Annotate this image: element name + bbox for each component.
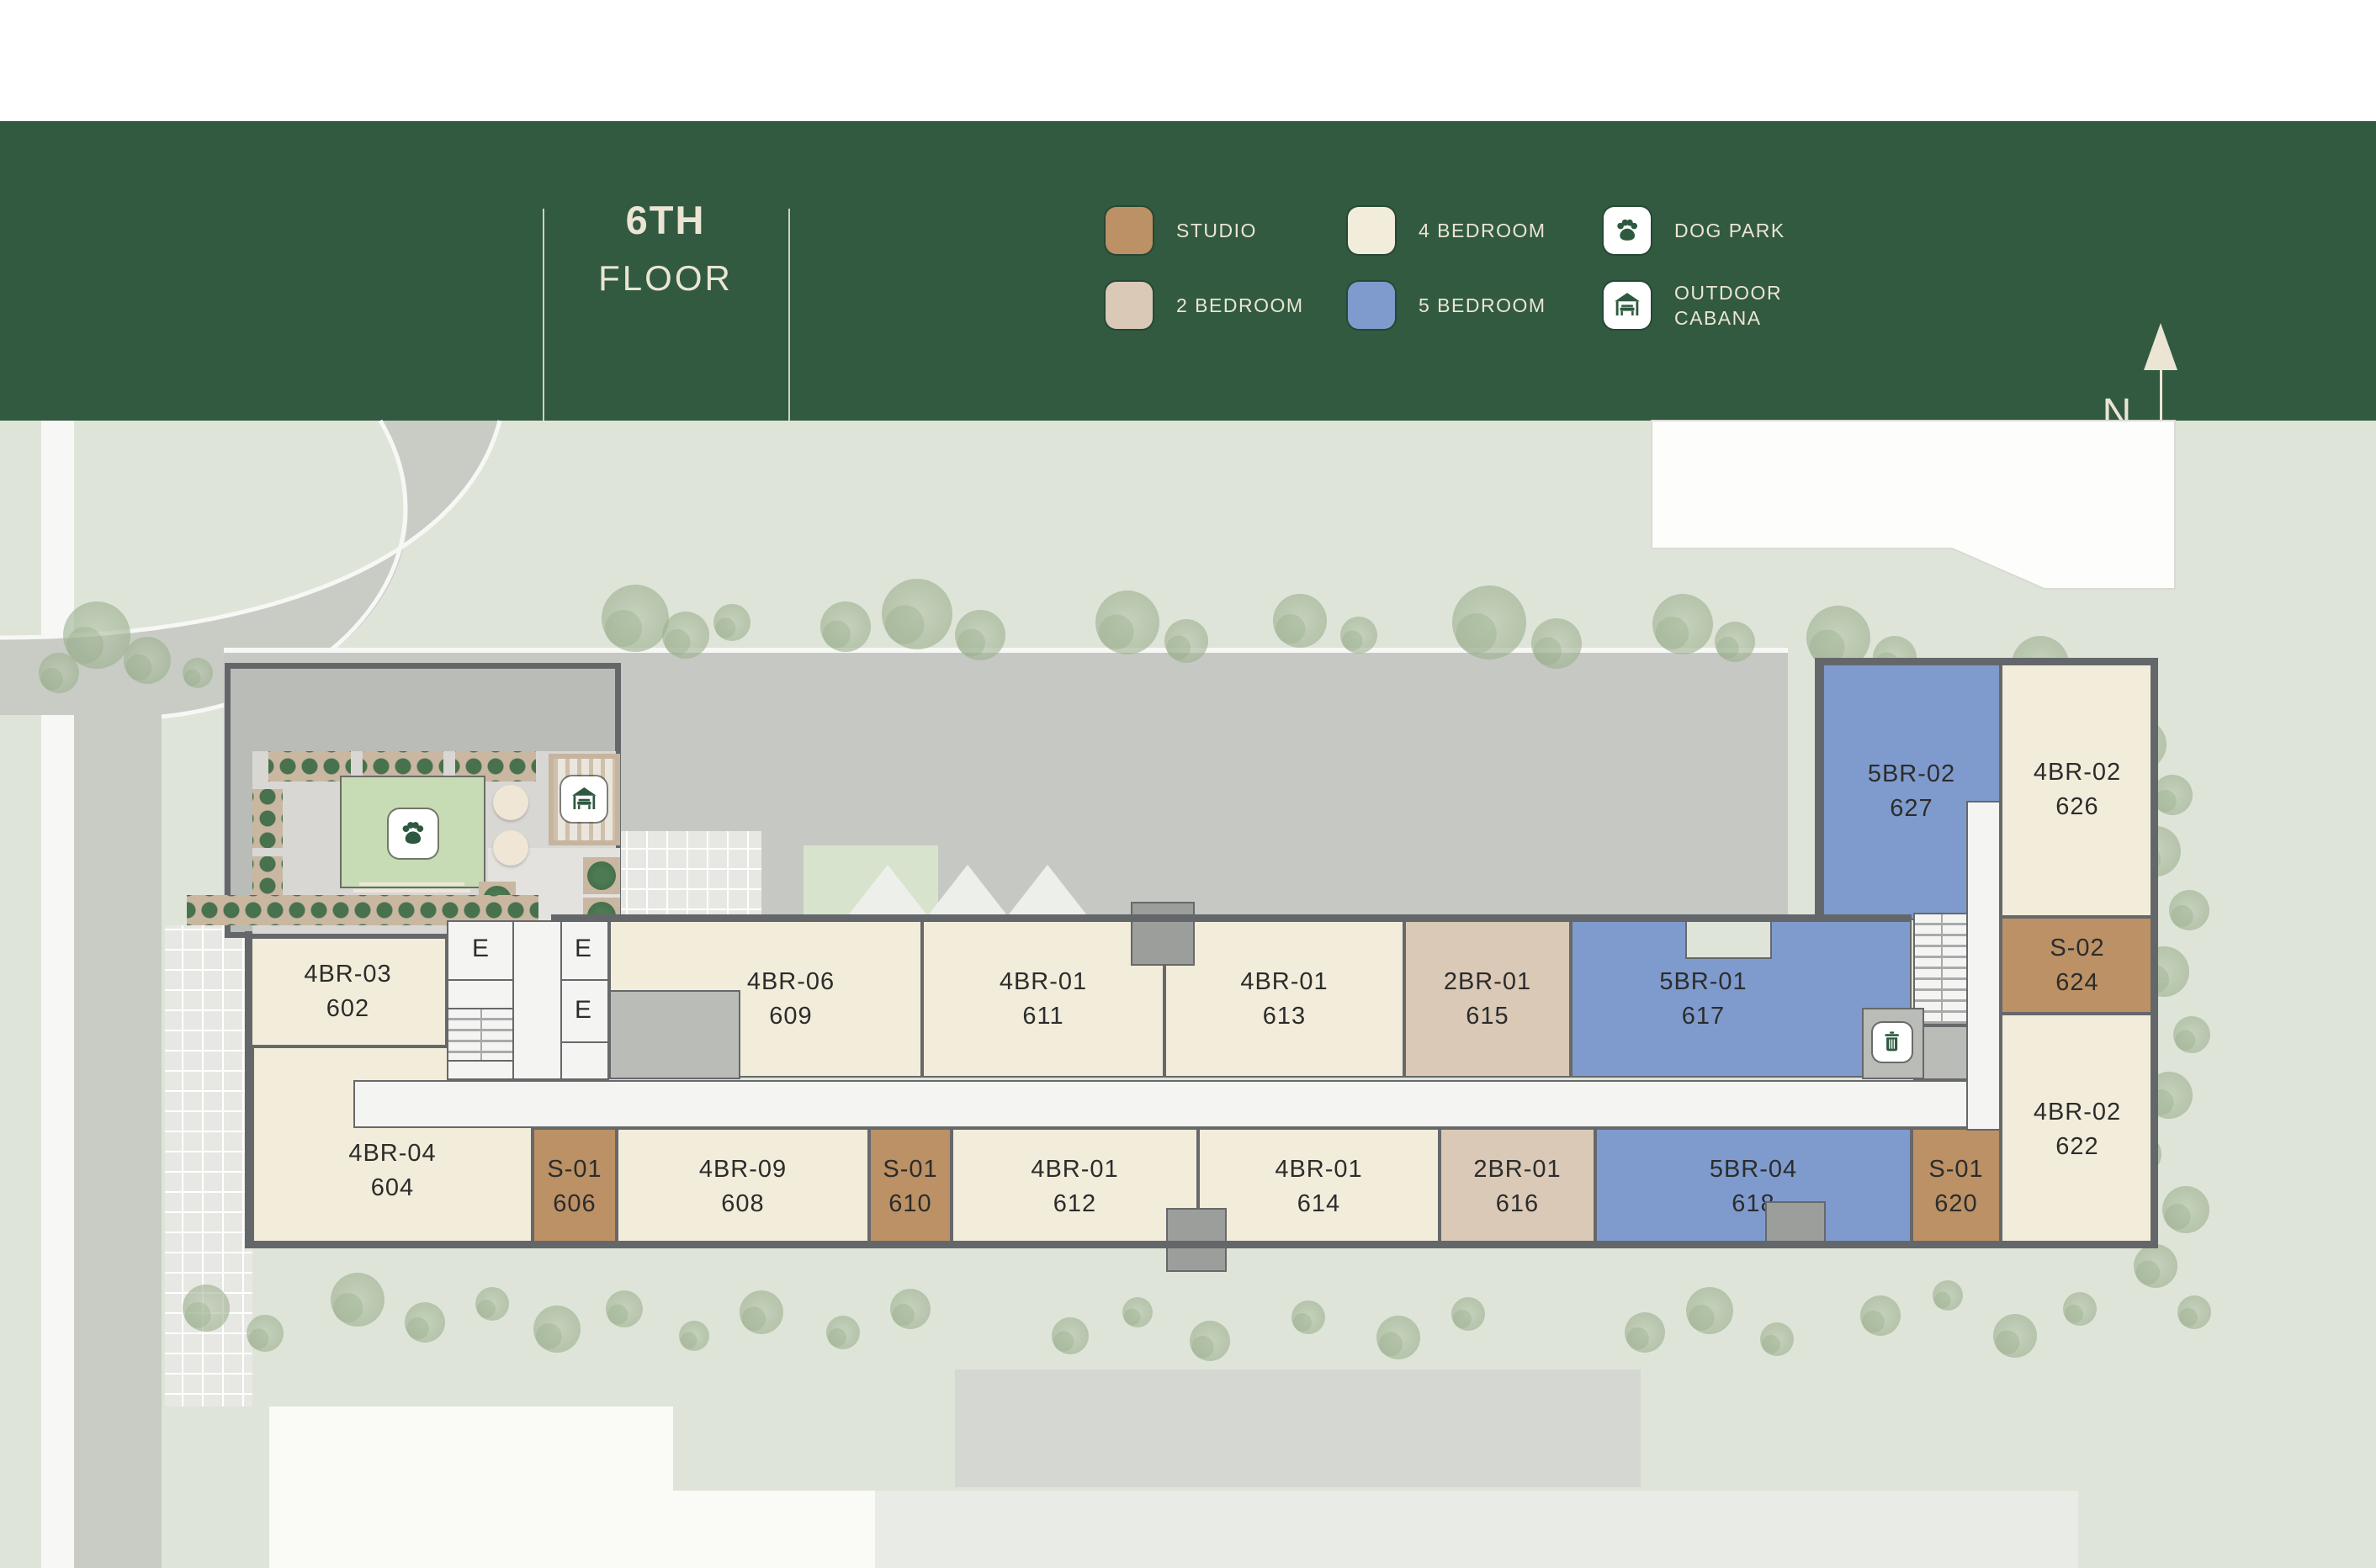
unit-number: 622 [2055, 1130, 2098, 1164]
unit-name: 4BR-03 [304, 957, 391, 992]
cabana-icon [561, 776, 607, 822]
planter [252, 789, 283, 848]
unit-number: 616 [1496, 1187, 1539, 1221]
outer-wall [551, 914, 1912, 922]
unit-number: 604 [371, 1171, 414, 1205]
unit-name: 4BR-02 [2034, 1095, 2121, 1130]
utility-block [609, 990, 740, 1079]
unit-name: 2BR-01 [1444, 965, 1531, 999]
unit-number: 610 [888, 1187, 931, 1221]
round-seat [493, 830, 528, 866]
outer-wall [245, 1241, 2158, 1248]
dog-park-icon [389, 809, 438, 858]
unit-number: 626 [2055, 790, 2098, 824]
unit-613[interactable]: 4BR-01613 [1164, 920, 1404, 1078]
roof-notch [1131, 902, 1195, 966]
unit-number: 609 [769, 999, 812, 1034]
unit-624[interactable]: S-02624 [2001, 917, 2154, 1014]
elevator-label: E [472, 935, 489, 963]
unit-name: S-01 [883, 1152, 937, 1187]
road-vertical [74, 665, 162, 1568]
unit-name: 2BR-01 [1473, 1152, 1561, 1187]
unit-618[interactable]: 5BR-04618 [1595, 1128, 1912, 1245]
corridor [353, 1080, 2001, 1128]
lightwell-notch [1685, 920, 1772, 959]
unit-name: S-01 [547, 1152, 602, 1187]
planter [268, 751, 351, 781]
unit-622[interactable]: 4BR-02622 [2001, 1014, 2154, 1245]
floorplan-page: 6TH FLOOR STUDIO 2 BEDROOM 4 BEDROOM 5 B… [0, 0, 2376, 1568]
sidewalk-strip [41, 421, 74, 1568]
unit-number: 611 [1022, 999, 1063, 1034]
unit-name: 4BR-01 [1031, 1152, 1118, 1187]
unit-name: 4BR-01 [1275, 1152, 1362, 1187]
unit-name: S-01 [1928, 1152, 1983, 1187]
unit-611[interactable]: 4BR-01611 [922, 920, 1164, 1078]
unit-606[interactable]: S-01606 [533, 1128, 617, 1245]
hall-shaft [1966, 801, 2001, 1131]
unit-number: 614 [1297, 1187, 1340, 1221]
unit-name: 4BR-06 [747, 965, 835, 999]
bottom-strip-white [269, 1491, 875, 1568]
unit-614[interactable]: 4BR-01614 [1198, 1128, 1440, 1245]
unit-626[interactable]: 4BR-02626 [2001, 663, 2154, 917]
unit-number: 608 [721, 1187, 764, 1221]
unit-number: 617 [1682, 999, 1725, 1034]
unit-602[interactable]: 4BR-03602 [249, 937, 447, 1046]
unit-612[interactable]: 4BR-01612 [952, 1128, 1198, 1245]
building-footprint-northeast [1652, 421, 2175, 589]
unit-name: 5BR-02 [1868, 757, 1955, 792]
unit-name: 4BR-04 [348, 1136, 436, 1171]
unit-name: 4BR-02 [2034, 755, 2121, 790]
balcony-notch [1765, 1201, 1826, 1243]
round-seat [493, 785, 528, 820]
unit-name: S-02 [2050, 931, 2104, 966]
unit-number: 627 [1890, 792, 1933, 826]
elevator-label: E [575, 935, 591, 963]
bottom-strip-gray [875, 1491, 2078, 1568]
unit-name: 5BR-01 [1659, 965, 1747, 999]
outer-wall [2151, 658, 2158, 1248]
unit-name: 4BR-01 [1240, 965, 1328, 999]
amphitheater-step [359, 882, 464, 886]
outer-wall [1815, 658, 2158, 665]
unit-616[interactable]: 2BR-01616 [1440, 1128, 1595, 1245]
unit-610[interactable]: S-01610 [869, 1128, 952, 1245]
unit-number: 620 [1934, 1187, 1977, 1221]
elevator-label: E [575, 996, 591, 1025]
unit-name: 5BR-04 [1710, 1152, 1797, 1187]
unit-608[interactable]: 4BR-09608 [617, 1128, 869, 1245]
trash-icon [1873, 1023, 1912, 1062]
outer-wall [245, 931, 252, 1248]
unit-name: 4BR-09 [699, 1152, 787, 1187]
unit-number: 613 [1263, 999, 1306, 1034]
bush-planter [583, 857, 620, 894]
unit-name: 4BR-01 [1000, 965, 1087, 999]
unit-number: 606 [553, 1187, 596, 1221]
unit-number: 602 [326, 992, 369, 1026]
paved-grid-west [165, 925, 252, 1406]
stairwell-west [447, 1008, 514, 1062]
unit-number: 615 [1466, 999, 1509, 1034]
balcony-notch [1166, 1208, 1227, 1272]
unit-615[interactable]: 2BR-01615 [1404, 920, 1571, 1078]
outer-wall [1815, 658, 1822, 920]
unit-number: 624 [2055, 966, 2098, 1000]
amphitheater-step [353, 889, 470, 893]
unit-620[interactable]: S-01620 [1912, 1128, 2001, 1245]
building-footprint-south [955, 1369, 1641, 1487]
unit-number: 612 [1053, 1187, 1096, 1221]
